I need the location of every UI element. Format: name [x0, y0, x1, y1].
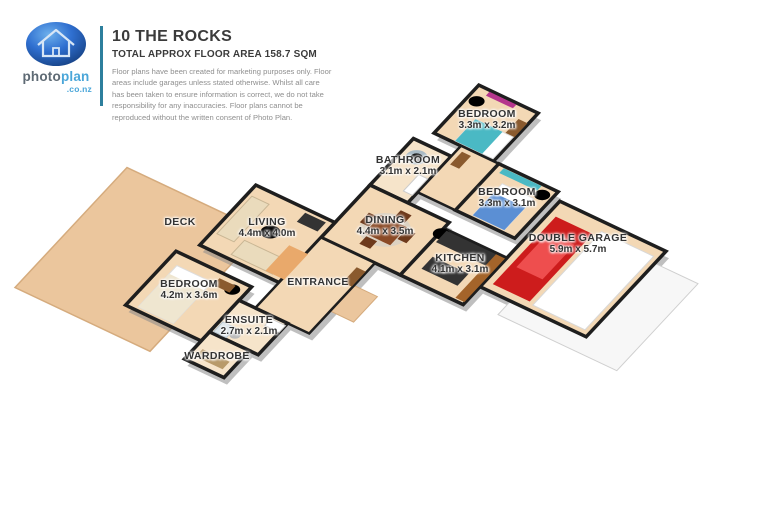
photoplan-house-icon — [23, 20, 89, 68]
photoplan-logo: photoplan.co.nz — [16, 20, 96, 93]
brand-plan: plan — [61, 69, 90, 84]
brand-photo: photo — [22, 69, 60, 84]
brand-tld: .co.nz — [16, 85, 96, 94]
disclaimer-text: Floor plans have been created for market… — [112, 66, 332, 123]
page-title: 10 THE ROCKS — [112, 28, 412, 46]
header-divider — [100, 26, 103, 106]
title-block: 10 THE ROCKS TOTAL APPROX FLOOR AREA 158… — [112, 28, 412, 123]
brand-wordmark: photoplan.co.nz — [16, 70, 96, 93]
header: photoplan.co.nz 10 THE ROCKS TOTAL APPRO… — [0, 0, 768, 140]
floor-area-subtitle: TOTAL APPROX FLOOR AREA 158.7 SQM — [112, 49, 412, 60]
